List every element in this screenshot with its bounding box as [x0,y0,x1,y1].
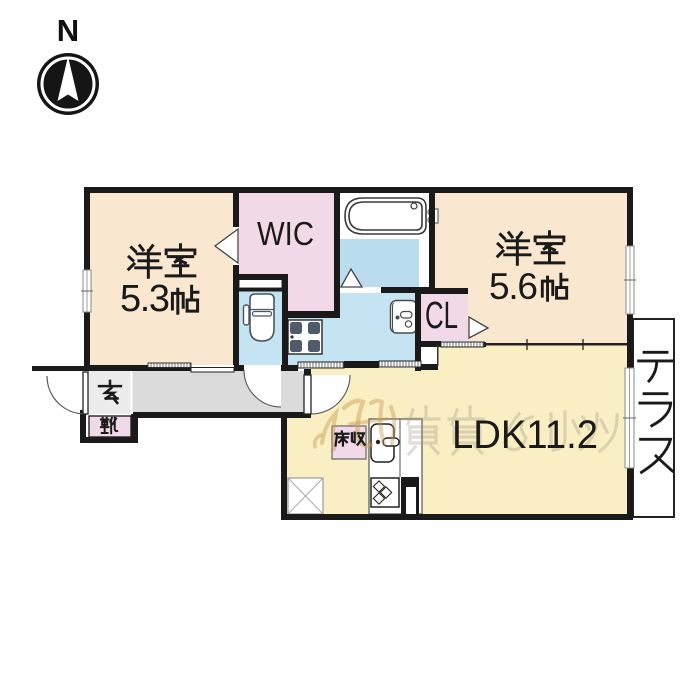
svg-text:CL: CL [425,295,458,337]
svg-text:LDK11.2: LDK11.2 [452,413,598,457]
svg-text:5.3: 5.3 [120,278,170,320]
svg-text:5.6: 5.6 [489,266,538,307]
svg-text:WIC: WIC [257,215,314,252]
svg-text:N: N [57,13,79,48]
